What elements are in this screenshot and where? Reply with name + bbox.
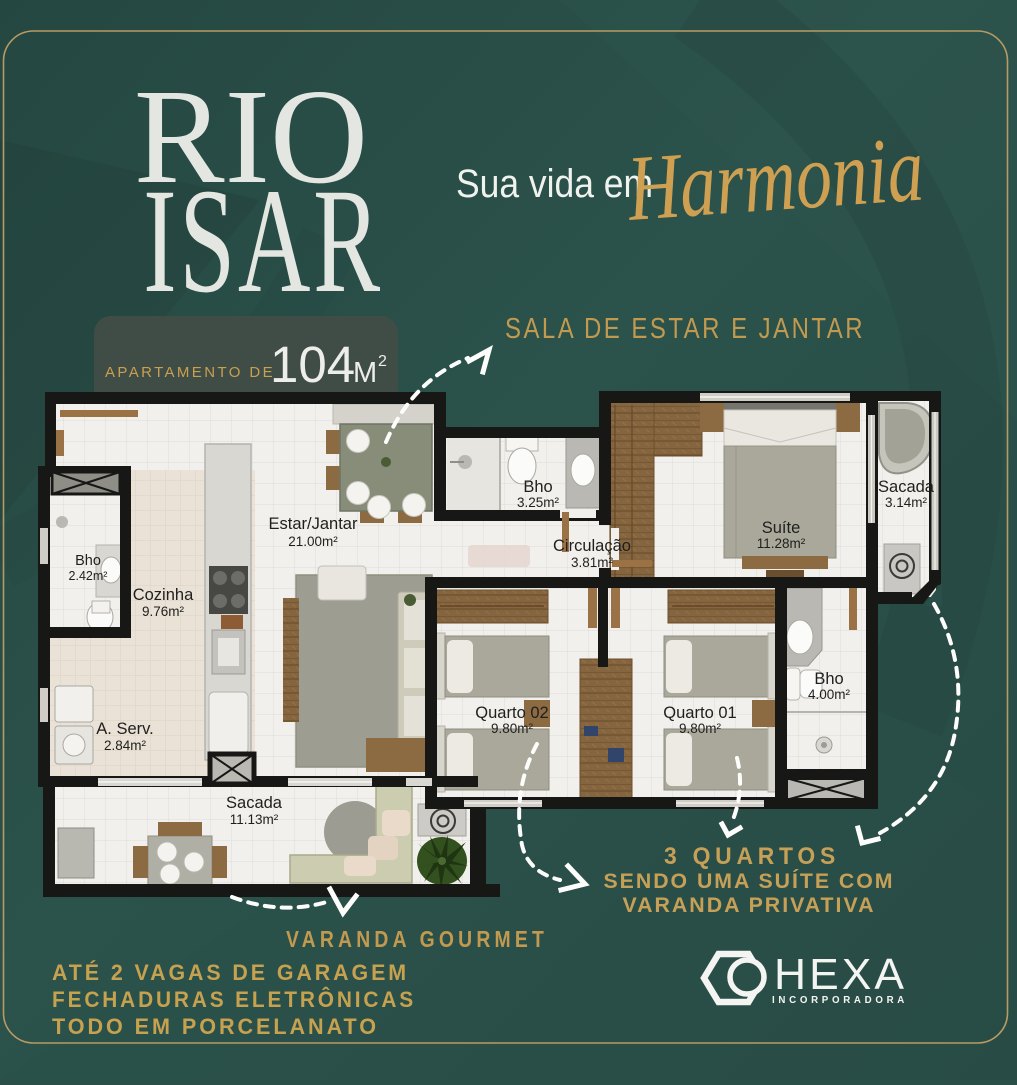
svg-text:M: M — [353, 357, 377, 389]
svg-text:104: 104 — [270, 336, 355, 393]
svg-text:Sua vida em: Sua vida em — [456, 162, 653, 206]
svg-text:Bho: Bho — [523, 478, 552, 496]
svg-text:FECHADURAS ELETRÔNICAS: FECHADURAS ELETRÔNICAS — [52, 987, 416, 1012]
svg-text:TODO EM PORCELANATO: TODO EM PORCELANATO — [52, 1014, 379, 1039]
svg-text:11.13m²: 11.13m² — [230, 812, 279, 827]
svg-text:3.81m²: 3.81m² — [571, 555, 614, 570]
svg-text:Cozinha: Cozinha — [133, 586, 194, 604]
svg-text:Harmonia: Harmonia — [623, 118, 926, 242]
svg-text:11.28m²: 11.28m² — [757, 536, 806, 551]
svg-text:Quarto 01: Quarto 01 — [663, 704, 736, 722]
svg-text:SENDO UMA SUÍTE COM: SENDO UMA SUÍTE COM — [604, 868, 895, 893]
svg-text:2.84m²: 2.84m² — [104, 738, 147, 753]
svg-text:VARANDA GOURMET: VARANDA GOURMET — [286, 926, 548, 952]
svg-text:3.25m²: 3.25m² — [517, 495, 560, 510]
svg-text:4.00m²: 4.00m² — [808, 687, 851, 702]
svg-text:Estar/Jantar: Estar/Jantar — [269, 515, 358, 533]
svg-text:2.42m²: 2.42m² — [69, 569, 108, 583]
svg-text:21.00m²: 21.00m² — [288, 534, 338, 549]
svg-text:ISAR: ISAR — [143, 157, 383, 324]
svg-text:A. Serv.: A. Serv. — [96, 720, 153, 738]
svg-text:Quarto 02: Quarto 02 — [475, 704, 548, 722]
svg-text:9.80m²: 9.80m² — [679, 721, 722, 736]
svg-text:2: 2 — [378, 353, 387, 370]
svg-text:Circulação: Circulação — [553, 537, 631, 555]
svg-text:Suíte: Suíte — [762, 519, 801, 537]
svg-text:VARANDA PRIVATIVA: VARANDA PRIVATIVA — [623, 893, 876, 917]
svg-text:HEXA: HEXA — [774, 950, 907, 999]
svg-text:SALA DE ESTAR E JANTAR: SALA DE ESTAR E JANTAR — [505, 313, 865, 345]
svg-text:Bho: Bho — [75, 553, 101, 569]
svg-text:9.80m²: 9.80m² — [491, 721, 534, 736]
svg-text:3 QUARTOS: 3 QUARTOS — [664, 843, 840, 870]
svg-text:INCORPORADORA: INCORPORADORA — [772, 994, 908, 1006]
svg-text:Bho: Bho — [814, 670, 843, 688]
svg-text:APARTAMENTO DE: APARTAMENTO DE — [105, 364, 275, 381]
svg-text:Sacada: Sacada — [226, 794, 283, 812]
svg-text:3.14m²: 3.14m² — [885, 495, 928, 510]
svg-text:Sacada: Sacada — [878, 478, 935, 496]
svg-text:9.76m²: 9.76m² — [142, 604, 185, 619]
svg-text:ATÉ 2 VAGAS DE GARAGEM: ATÉ 2 VAGAS DE GARAGEM — [52, 960, 409, 985]
